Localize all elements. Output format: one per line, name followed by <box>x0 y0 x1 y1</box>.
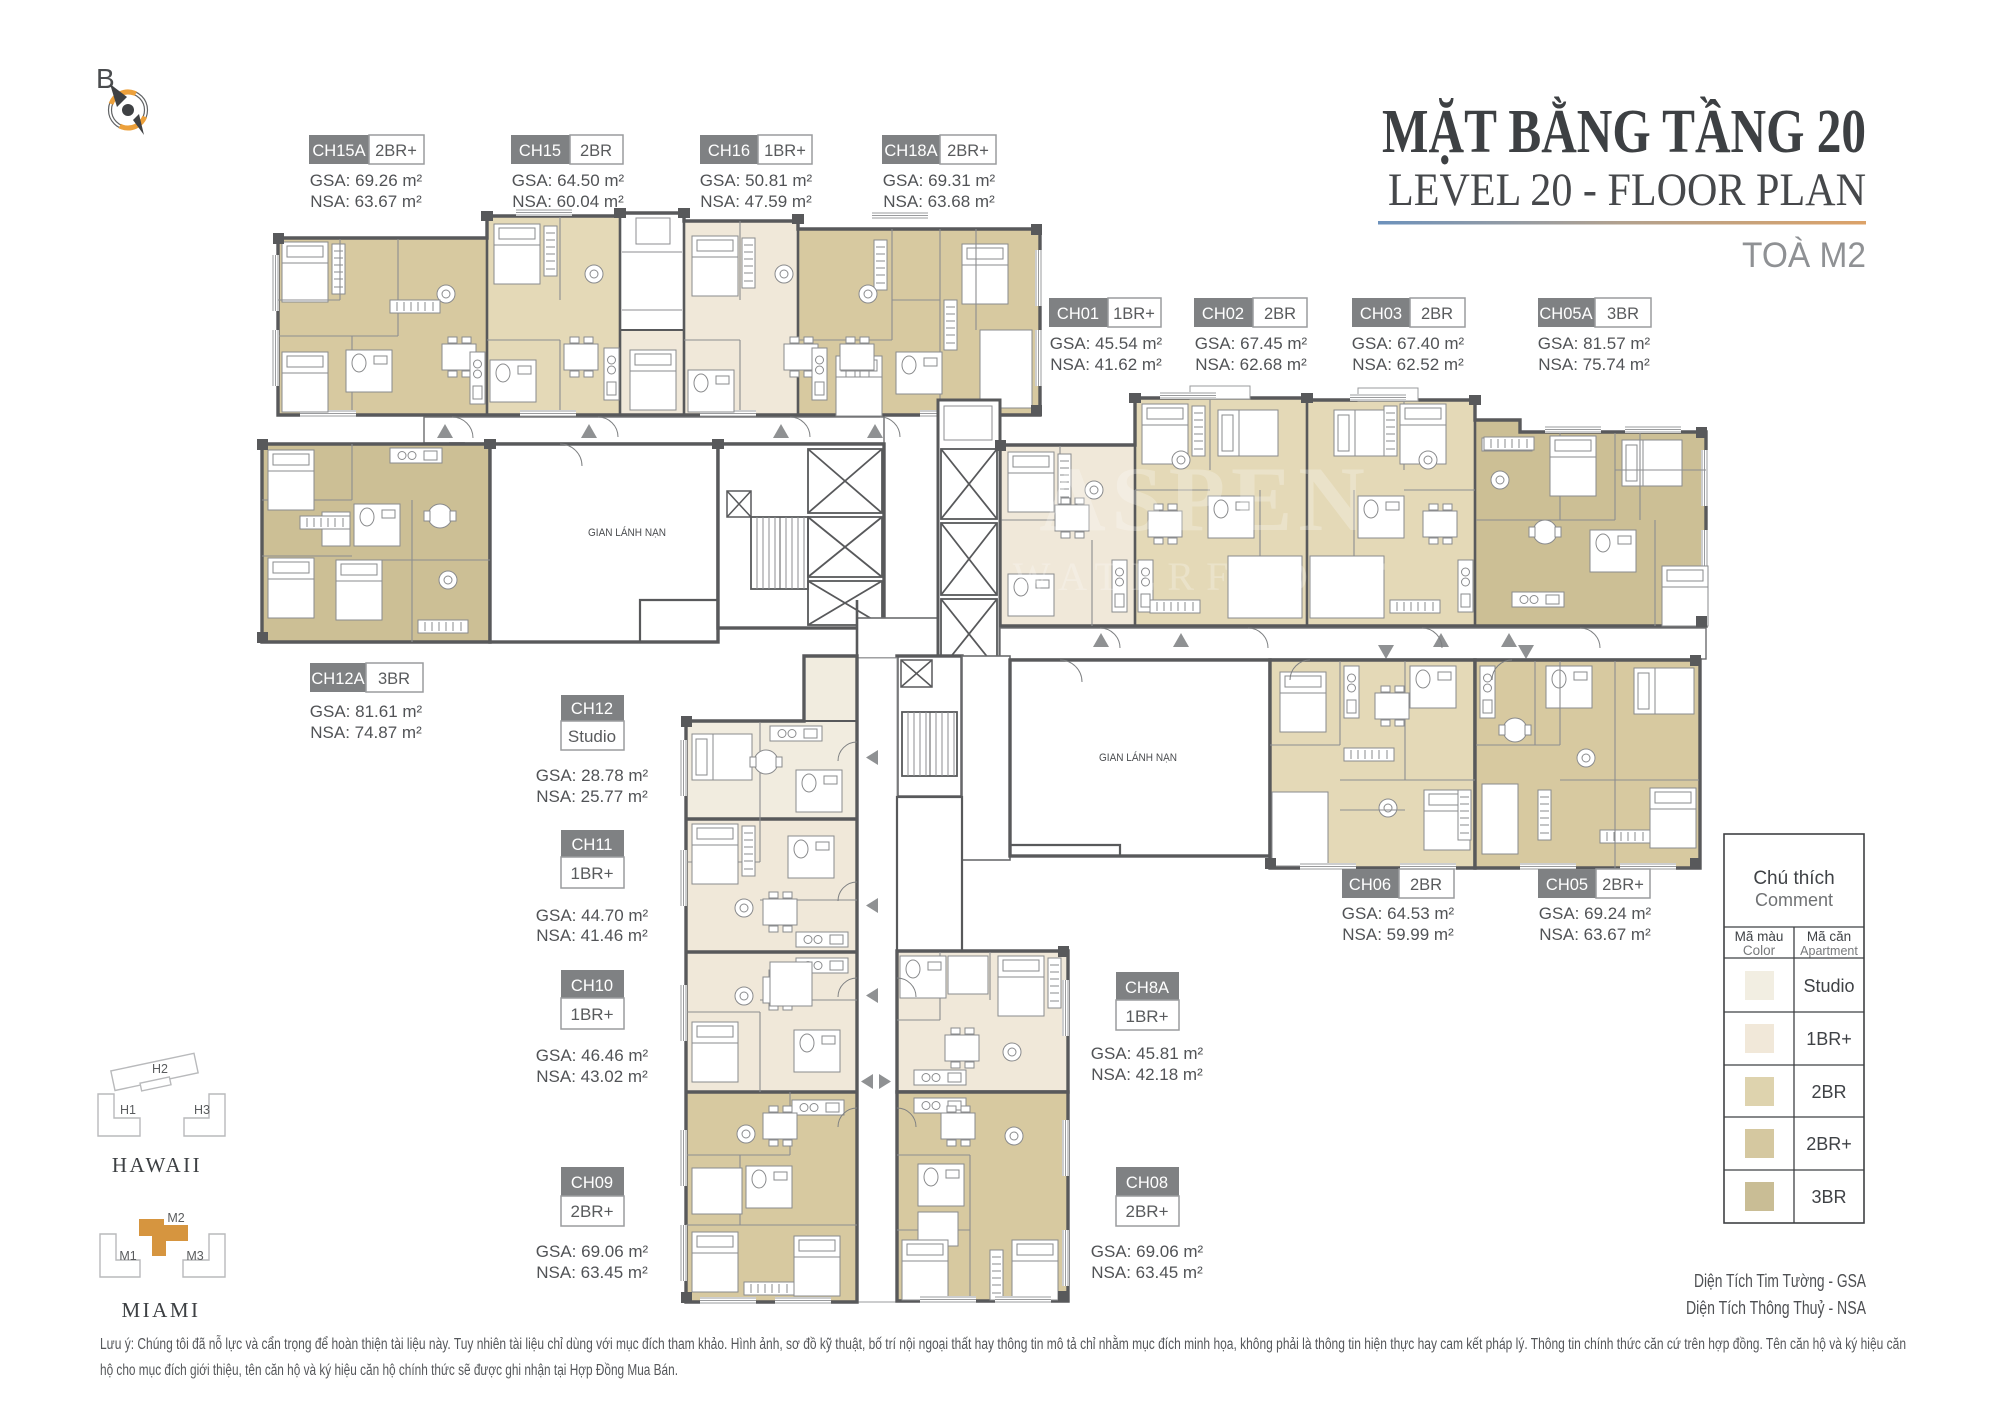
svg-text:M3: M3 <box>186 1249 203 1263</box>
svg-text:GSA: 28.78 m²: GSA: 28.78 m² <box>536 766 649 785</box>
svg-text:NSA: 25.77 m²: NSA: 25.77 m² <box>536 787 648 806</box>
svg-text:NSA: 63.45 m²: NSA: 63.45 m² <box>1091 1263 1203 1282</box>
svg-text:NSA: 62.68 m²: NSA: 62.68 m² <box>1195 355 1307 374</box>
svg-text:2BR: 2BR <box>1410 876 1442 894</box>
svg-text:2BR: 2BR <box>1811 1082 1846 1102</box>
svg-text:Studio: Studio <box>568 727 616 746</box>
svg-text:GSA: 64.53 m²: GSA: 64.53 m² <box>1342 904 1455 923</box>
svg-text:NSA: 63.45 m²: NSA: 63.45 m² <box>536 1263 648 1282</box>
svg-text:CH05A: CH05A <box>1539 305 1592 323</box>
svg-text:NSA: 41.62 m²: NSA: 41.62 m² <box>1050 355 1162 374</box>
svg-text:NSA: 60.04 m²: NSA: 60.04 m² <box>512 192 624 211</box>
svg-text:GSA: 81.57 m²: GSA: 81.57 m² <box>1538 334 1651 353</box>
svg-text:2BR: 2BR <box>1421 305 1453 323</box>
svg-text:H3: H3 <box>194 1103 210 1117</box>
svg-text:CH06: CH06 <box>1349 876 1391 894</box>
svg-text:NSA: 43.02 m²: NSA: 43.02 m² <box>536 1067 648 1086</box>
svg-text:HAWAII: HAWAII <box>112 1153 202 1177</box>
svg-text:H2: H2 <box>152 1062 168 1076</box>
svg-text:NSA: 63.68 m²: NSA: 63.68 m² <box>883 192 995 211</box>
svg-text:NSA: 41.46 m²: NSA: 41.46 m² <box>536 926 648 945</box>
svg-text:CH02: CH02 <box>1202 305 1244 323</box>
svg-text:Chú thích: Chú thích <box>1753 868 1834 889</box>
svg-text:2BR+: 2BR+ <box>1126 1202 1169 1221</box>
svg-text:2BR+: 2BR+ <box>375 142 417 160</box>
svg-text:CH8A: CH8A <box>1125 979 1169 997</box>
svg-text:2BR+: 2BR+ <box>571 1202 614 1221</box>
svg-text:CH11: CH11 <box>572 836 613 854</box>
svg-text:GSA: 81.61 m²: GSA: 81.61 m² <box>310 702 423 721</box>
svg-text:GSA: 50.81 m²: GSA: 50.81 m² <box>700 171 813 190</box>
svg-text:CH10: CH10 <box>571 977 613 995</box>
svg-text:1BR+: 1BR+ <box>1113 305 1155 323</box>
svg-text:Diện Tích Tim Tường - GSA: Diện Tích Tim Tường - GSA <box>1694 1271 1866 1291</box>
svg-text:NSA: 63.67 m²: NSA: 63.67 m² <box>1539 925 1651 944</box>
svg-text:hộ cho mục đích giới thiệu, tê: hộ cho mục đích giới thiệu, tên căn hộ v… <box>100 1362 678 1379</box>
svg-text:3BR: 3BR <box>1811 1187 1846 1207</box>
svg-text:NSA: 75.74 m²: NSA: 75.74 m² <box>1538 355 1650 374</box>
svg-text:GSA: 67.45 m²: GSA: 67.45 m² <box>1195 334 1308 353</box>
svg-text:GSA: 64.50 m²: GSA: 64.50 m² <box>512 171 625 190</box>
svg-text:GSA: 44.70 m²: GSA: 44.70 m² <box>536 906 649 925</box>
svg-text:CH15A: CH15A <box>312 142 365 160</box>
svg-text:GIAN LÁNH NẠN: GIAN LÁNH NẠN <box>1099 751 1177 764</box>
svg-text:1BR+: 1BR+ <box>571 1005 614 1024</box>
svg-text:3BR: 3BR <box>378 670 410 688</box>
svg-text:1BR+: 1BR+ <box>764 142 806 160</box>
svg-text:Apartment: Apartment <box>1800 944 1858 958</box>
svg-text:CH12: CH12 <box>571 700 613 718</box>
svg-text:TOÀ M2: TOÀ M2 <box>1742 236 1866 275</box>
svg-text:LEVEL 20 - FLOOR PLAN: LEVEL 20 - FLOOR PLAN <box>1388 164 1866 216</box>
svg-text:Color: Color <box>1743 943 1776 958</box>
svg-text:Mã màu: Mã màu <box>1735 929 1784 944</box>
svg-text:Lưu ý: Chúng tôi đã nỗ lực và: Lưu ý: Chúng tôi đã nỗ lực và cẩn trọng … <box>100 1336 1906 1353</box>
svg-text:Comment: Comment <box>1755 890 1833 910</box>
svg-text:CH16: CH16 <box>708 142 750 160</box>
svg-text:CH15: CH15 <box>519 142 561 160</box>
svg-text:1BR+: 1BR+ <box>571 864 614 883</box>
svg-text:2BR+: 2BR+ <box>947 142 989 160</box>
svg-text:NSA: 42.18 m²: NSA: 42.18 m² <box>1091 1065 1203 1084</box>
svg-text:2BR+: 2BR+ <box>1806 1134 1852 1154</box>
svg-text:GSA: 69.31 m²: GSA: 69.31 m² <box>883 171 996 190</box>
svg-text:GSA: 45.54 m²: GSA: 45.54 m² <box>1050 334 1163 353</box>
svg-text:MIAMI: MIAMI <box>122 1298 201 1322</box>
svg-text:GSA: 46.46 m²: GSA: 46.46 m² <box>536 1046 649 1065</box>
svg-text:GSA: 69.06 m²: GSA: 69.06 m² <box>1091 1242 1204 1261</box>
svg-text:3BR: 3BR <box>1607 305 1639 323</box>
svg-text:GIAN LÁNH NẠN: GIAN LÁNH NẠN <box>588 526 666 539</box>
svg-text:ASPEN: ASPEN <box>1039 448 1371 550</box>
svg-text:CH18A: CH18A <box>884 142 937 160</box>
svg-text:CH05: CH05 <box>1546 876 1588 894</box>
svg-text:NSA: 62.52 m²: NSA: 62.52 m² <box>1352 355 1464 374</box>
svg-text:2BR: 2BR <box>1264 305 1296 323</box>
svg-text:M1: M1 <box>119 1249 136 1263</box>
svg-text:GSA: 69.26 m²: GSA: 69.26 m² <box>310 171 423 190</box>
svg-text:CH03: CH03 <box>1360 305 1402 323</box>
svg-text:NSA: 59.99 m²: NSA: 59.99 m² <box>1342 925 1454 944</box>
svg-text:CH08: CH08 <box>1126 1174 1168 1192</box>
svg-text:MẶT BẰNG TẦNG 20: MẶT BẰNG TẦNG 20 <box>1382 97 1866 166</box>
svg-text:M2: M2 <box>167 1211 184 1225</box>
svg-text:1BR+: 1BR+ <box>1806 1029 1852 1049</box>
svg-text:Mã căn: Mã căn <box>1807 929 1851 944</box>
svg-text:GSA: 69.06 m²: GSA: 69.06 m² <box>536 1242 649 1261</box>
svg-text:GSA: 69.24 m²: GSA: 69.24 m² <box>1539 904 1652 923</box>
svg-text:WATERFRONT: WATERFRONT <box>1013 554 1397 599</box>
svg-text:2BR: 2BR <box>580 142 612 160</box>
svg-text:CH12A: CH12A <box>311 670 364 688</box>
svg-text:H1: H1 <box>120 1103 136 1117</box>
svg-text:2BR+: 2BR+ <box>1602 876 1644 894</box>
svg-text:GSA: 45.81 m²: GSA: 45.81 m² <box>1091 1044 1204 1063</box>
svg-text:CH09: CH09 <box>571 1174 613 1192</box>
svg-text:Studio: Studio <box>1803 976 1854 996</box>
svg-text:1BR+: 1BR+ <box>1126 1007 1169 1026</box>
svg-text:NSA: 63.67 m²: NSA: 63.67 m² <box>310 192 422 211</box>
svg-text:NSA: 74.87 m²: NSA: 74.87 m² <box>310 723 422 742</box>
svg-text:GSA: 67.40 m²: GSA: 67.40 m² <box>1352 334 1465 353</box>
svg-text:CH01: CH01 <box>1057 305 1099 323</box>
svg-text:Diện Tích Thông Thuỷ - NSA: Diện Tích Thông Thuỷ - NSA <box>1686 1298 1866 1318</box>
svg-text:NSA: 47.59 m²: NSA: 47.59 m² <box>700 192 812 211</box>
